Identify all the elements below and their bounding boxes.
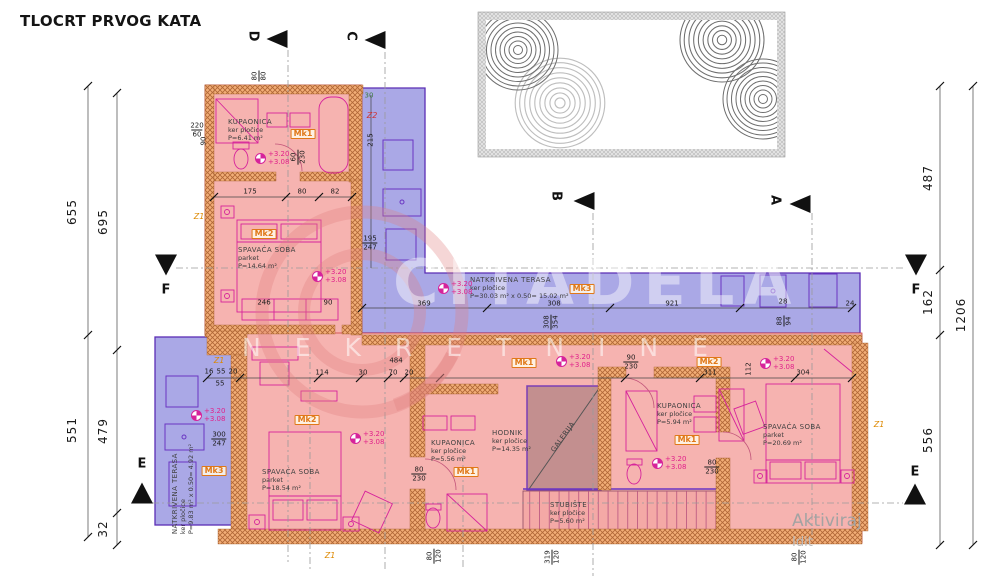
dimension-label: 55 [216, 381, 225, 388]
plan-labels: 6556955514793248716255612061758082902469… [0, 0, 1007, 584]
dimension-label: 369 [417, 301, 430, 308]
dimension-label: 80 [298, 189, 307, 196]
material-tag: Mk1 [454, 467, 479, 477]
dimension-label: 484 [389, 358, 402, 365]
dimension-label: 32 [97, 520, 109, 537]
dimension-label: 479 [97, 418, 109, 444]
section-marker-letter: B [550, 191, 563, 201]
section-marker-arrow [267, 30, 288, 48]
dimension-label: 20 [405, 370, 414, 377]
dimension-pair-label: 22060 [190, 122, 203, 139]
dimension-label: 24 [846, 301, 855, 308]
material-tag: Mk1 [512, 358, 537, 368]
dimension-pair-label: 90230 [623, 354, 638, 371]
elevation-icon [438, 283, 449, 294]
dimension-label: 16 [205, 369, 214, 376]
dimension-label: 215 [368, 133, 375, 146]
elevation-marker: +3.20+3.08 [652, 455, 686, 471]
elevation-icon [556, 356, 567, 367]
elevation-icon [191, 410, 202, 421]
room-label: GALERIJA [549, 420, 576, 453]
dimension-label: 487 [922, 165, 934, 191]
elevation-marker: +3.20+3.08 [438, 280, 472, 296]
dimension-label: 30 [365, 93, 374, 100]
room-label: KUPAONICAker pločiceP=5.56 m² [431, 439, 475, 463]
dimension-pair-label: 8080 [251, 71, 268, 82]
elevation-icon [652, 458, 663, 469]
dimension-pair-label: 195247 [362, 235, 377, 252]
dimension-label: 1206 [955, 298, 967, 333]
dimension-label: 20 [229, 369, 238, 376]
dimension-pair-label: 80120 [426, 548, 443, 563]
dimension-label: 246 [257, 300, 270, 307]
dimension-label: 308 [547, 301, 560, 308]
elevation-marker: +3.20+3.08 [191, 407, 225, 423]
material-tag: Mk1 [675, 435, 700, 445]
elevation-marker: +3.20+3.08 [350, 430, 384, 446]
elevation-icon [312, 271, 323, 282]
material-tag: Mk3 [202, 466, 227, 476]
section-marker-letter: E [911, 466, 920, 479]
material-tag: Mk2 [252, 229, 277, 239]
dimension-label: 921 [665, 301, 678, 308]
elevation-marker: +3.20+3.08 [760, 355, 794, 371]
section-marker-arrow [574, 192, 595, 210]
room-label: NATKRIVENA TERASAker pločiceP=9.83 m² x … [171, 444, 195, 534]
dimension-label: 30 [359, 370, 368, 377]
room-label: SPAVAĆA SOBAparketP=20.69 m² [763, 423, 821, 447]
section-marker-letter: C [345, 31, 358, 41]
section-marker-letter: F [162, 284, 171, 297]
wall-tag: Z1 [214, 357, 225, 365]
floor-plan-page: CITADELA NEKRETNINE TLOCRT PRVOG KATA Ak… [0, 0, 1007, 584]
room-label: HODNIKker pločiceP=14.35 m² [492, 429, 531, 453]
section-marker-letter: F [912, 284, 921, 297]
dimension-pair-label: 319120 [544, 549, 561, 564]
elevation-icon [350, 433, 361, 444]
dimension-label: 70 [389, 370, 398, 377]
section-marker-letter: D [247, 31, 260, 42]
elevation-icon [255, 153, 266, 164]
dimension-label: 114 [315, 370, 328, 377]
elevation-marker: +3.20+3.08 [255, 150, 289, 166]
section-marker-arrow [365, 31, 386, 49]
dimension-label: 311 [703, 370, 716, 377]
material-tag: Mk2 [697, 357, 722, 367]
room-label: KUPAONICAker pločiceP=6.41 m² [228, 118, 272, 142]
room-label: KUPAONICAker pločiceP=5.94 m² [657, 402, 701, 426]
dimension-label: 55 [217, 369, 226, 376]
dimension-label: 695 [97, 209, 109, 235]
material-tag: Mk2 [295, 415, 320, 425]
dimension-label: 90 [324, 300, 333, 307]
dimension-label: 551 [66, 417, 78, 443]
wall-tag: Z2 [367, 112, 378, 120]
dimension-pair-label: 60230 [290, 149, 307, 164]
dimension-label: 112 [746, 362, 753, 375]
room-label: SPAVAĆA SOBAparketP=14.64 m² [238, 246, 296, 270]
room-label: NATKRIVENA TERASAker pločiceP=30.03 m² x… [470, 276, 569, 300]
dimension-label: 82 [331, 189, 340, 196]
dimension-label: 556 [922, 427, 934, 453]
section-marker-letter: E [138, 458, 147, 471]
dimension-label: 28 [779, 299, 788, 306]
wall-tag: Z1 [874, 421, 885, 429]
dimension-pair-label: 80120 [791, 549, 808, 564]
dimension-label: 162 [922, 289, 934, 315]
wall-tag: Z1 [325, 552, 336, 560]
section-marker-arrow [131, 483, 153, 504]
wall-tag: Z1 [194, 213, 205, 221]
section-marker-arrow [155, 255, 177, 276]
dimension-label: 304 [796, 370, 809, 377]
dimension-pair-label: 8894 [776, 316, 793, 327]
dimension-label: 655 [66, 199, 78, 225]
elevation-icon [760, 358, 771, 369]
room-label: SPAVAĆA SOBAparketP=18.54 m² [262, 468, 320, 492]
section-marker-letter: A [769, 195, 782, 205]
dimension-pair-label: 300247 [211, 431, 226, 448]
dimension-label: 175 [243, 189, 256, 196]
dimension-pair-label: 80230 [411, 466, 426, 483]
dimension-pair-label: 308354 [543, 314, 560, 329]
elevation-marker: +3.20+3.08 [312, 268, 346, 284]
section-marker-arrow [904, 484, 926, 505]
material-tag: Mk3 [570, 284, 595, 294]
section-marker-arrow [790, 195, 811, 213]
dimension-pair-label: 80230 [704, 459, 719, 476]
elevation-marker: +3.20+3.08 [556, 353, 590, 369]
material-tag: Mk1 [291, 129, 316, 139]
room-label: STUBIŠTEker pločiceP=5.60 m² [550, 501, 587, 525]
section-marker-arrow [905, 255, 927, 276]
